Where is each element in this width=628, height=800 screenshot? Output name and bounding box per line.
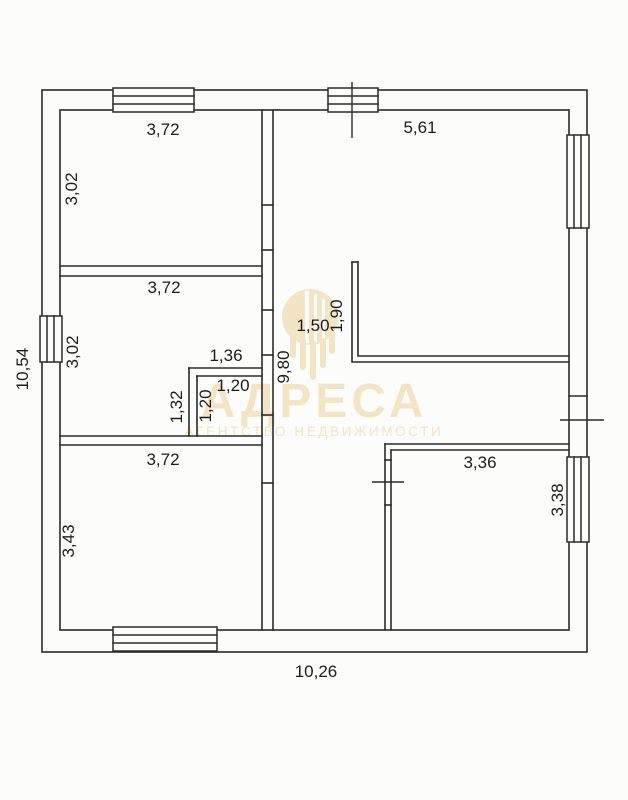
dim-closet-outer-height: 1,32	[167, 390, 186, 423]
dim-room-bottom-right-height: 3,38	[548, 483, 567, 516]
dim-closet-inner-width: 1,20	[216, 376, 249, 395]
window-bottom	[113, 627, 217, 651]
scanned-floor-plan: АДРЕСА АГЕНТСТВО НЕДВИЖИМОСТИ	[0, 0, 628, 800]
dim-room-bottom-left-width: 3,72	[146, 450, 179, 469]
kitchen-partition-wall	[352, 262, 569, 362]
dim-closet-outer-width: 1,36	[209, 346, 242, 365]
dim-living-area-width: 5,61	[403, 118, 436, 137]
dim-room-mid-left-height: 3,02	[63, 335, 82, 368]
window-right-lower	[567, 457, 589, 542]
dim-overall-height: 10,54	[13, 348, 32, 391]
dim-room-bottom-right-width: 3,36	[463, 453, 496, 472]
dim-closet-inner-height: 1,20	[196, 389, 215, 422]
window-top-right	[328, 88, 378, 112]
window-left	[40, 316, 62, 362]
dim-room-top-left-width: 3,72	[146, 120, 179, 139]
dim-hall-inner-height: 9,80	[274, 350, 293, 383]
dim-room-top-left-height: 3,02	[62, 172, 81, 205]
dim-room-bottom-left-height: 3,43	[59, 524, 78, 557]
dim-partition-length: 1,90	[327, 299, 346, 332]
window-right-upper	[567, 135, 589, 228]
central-wall	[262, 110, 273, 630]
dim-overall-width: 10,26	[295, 662, 338, 681]
dim-partition-offset: 1,50	[296, 316, 329, 335]
dim-room-mid-left-width: 3,72	[147, 278, 180, 297]
window-top-left	[113, 88, 194, 112]
wall-divider-upper	[60, 266, 262, 276]
